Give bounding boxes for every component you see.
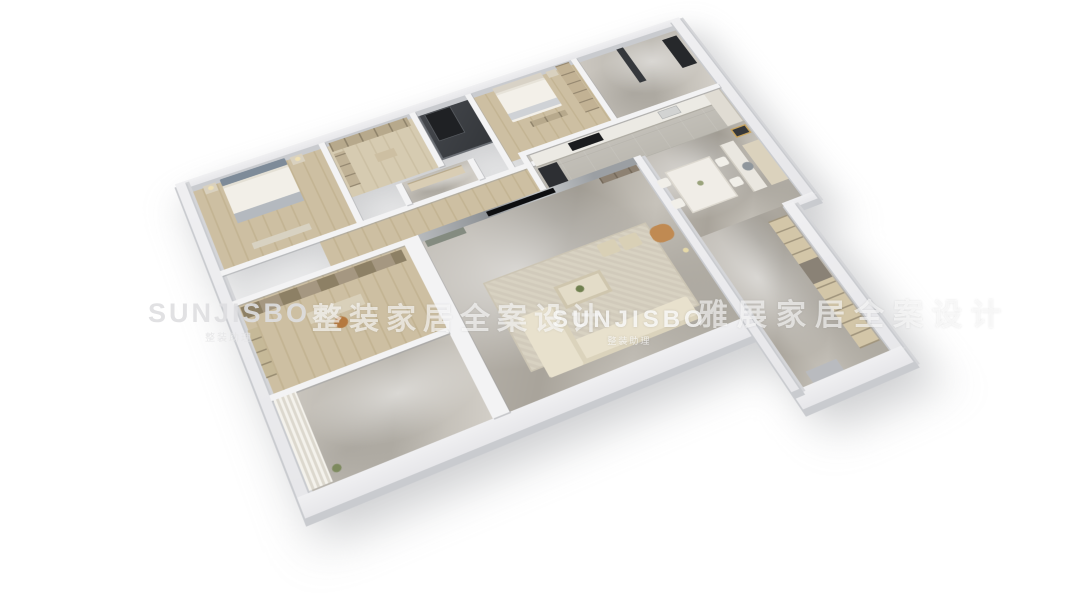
3d-scene — [0, 0, 1080, 608]
apartment-plan — [175, 17, 937, 608]
floorplan-render-canvas: SUNJISBO 整装助理 整装家居全案设计 SUNJISBO 整装助理 雅展家… — [0, 0, 1080, 608]
